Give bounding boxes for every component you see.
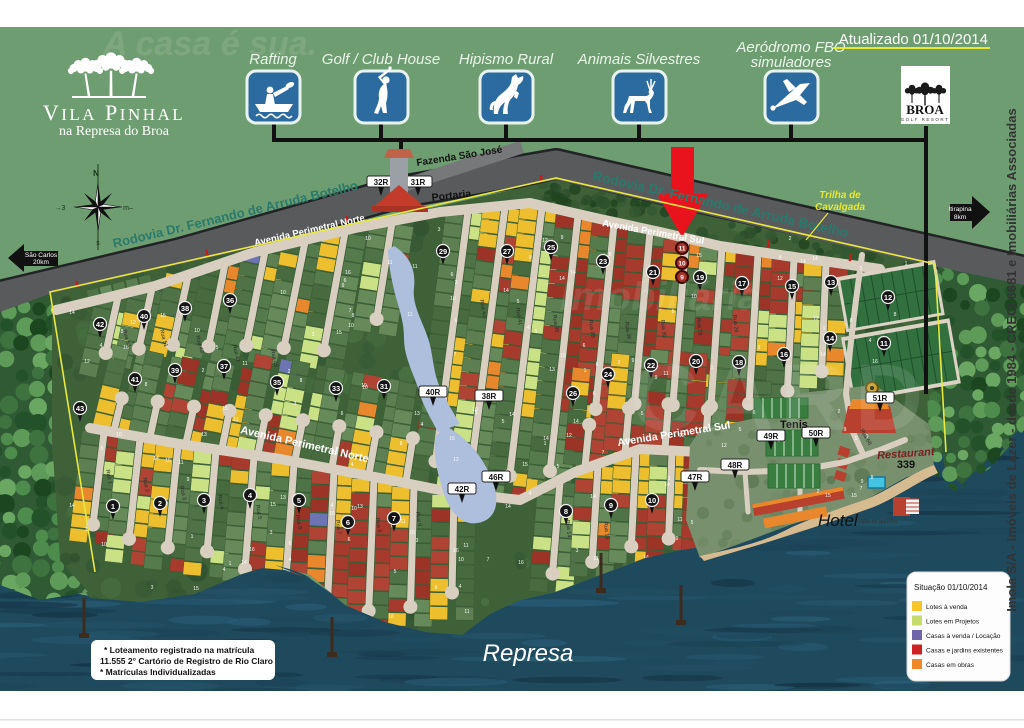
svg-text:11: 11: [593, 556, 598, 562]
svg-text:37: 37: [220, 362, 228, 371]
svg-text:4: 4: [459, 584, 462, 590]
svg-text:3: 3: [151, 585, 154, 591]
svg-text:10: 10: [450, 296, 456, 302]
svg-text:47R: 47R: [688, 473, 703, 482]
svg-text:1: 1: [191, 534, 194, 540]
svg-text:Itirapina: Itirapina: [948, 206, 972, 213]
svg-text:CARD: CARD: [631, 345, 929, 451]
svg-text:3: 3: [668, 476, 671, 482]
svg-text:6: 6: [455, 318, 458, 324]
svg-text:5: 5: [216, 345, 219, 351]
svg-text:7: 7: [392, 514, 396, 523]
svg-text:12: 12: [813, 316, 819, 322]
svg-text:12: 12: [130, 320, 136, 326]
svg-text:10: 10: [648, 496, 656, 505]
svg-text:4: 4: [421, 422, 424, 428]
svg-text:42R: 42R: [455, 485, 470, 494]
svg-text:3: 3: [202, 496, 206, 505]
svg-text:13: 13: [414, 411, 420, 417]
svg-text:→3: →3: [55, 205, 66, 212]
svg-text:8: 8: [609, 252, 612, 258]
svg-text:na Represa do Broa: na Represa do Broa: [59, 124, 170, 139]
svg-text:15: 15: [270, 502, 276, 508]
svg-text:5: 5: [691, 520, 694, 526]
svg-text:26: 26: [569, 389, 577, 398]
svg-text:11: 11: [400, 519, 405, 525]
svg-text:11: 11: [242, 361, 247, 367]
svg-text:15: 15: [788, 282, 796, 291]
svg-text:8km: 8km: [954, 214, 966, 221]
svg-text:16: 16: [388, 614, 394, 620]
svg-text:11: 11: [464, 609, 469, 615]
svg-text:15: 15: [851, 493, 857, 499]
svg-text:3: 3: [294, 401, 297, 407]
svg-text:16: 16: [453, 548, 459, 554]
svg-text:11: 11: [407, 312, 412, 318]
svg-text:14: 14: [69, 310, 75, 316]
svg-text:9: 9: [187, 477, 190, 483]
svg-text:Valle do gaúcho: Valle do gaúcho: [858, 519, 897, 525]
svg-text:10: 10: [409, 530, 415, 536]
svg-text:5: 5: [297, 496, 301, 505]
svg-text:10: 10: [194, 328, 200, 334]
svg-text:8: 8: [564, 507, 568, 516]
svg-text:N: N: [93, 169, 99, 178]
svg-text:11: 11: [233, 417, 238, 423]
svg-text:6: 6: [348, 537, 351, 543]
svg-text:6: 6: [451, 272, 454, 278]
svg-text:5: 5: [517, 299, 520, 305]
svg-text:3: 3: [438, 227, 441, 233]
svg-text:BROA: BROA: [906, 102, 944, 117]
svg-text:46R: 46R: [489, 473, 504, 482]
svg-text:6: 6: [346, 518, 350, 527]
svg-text:Lotes em Projetos: Lotes em Projetos: [926, 619, 980, 626]
svg-text:35: 35: [273, 378, 281, 387]
svg-text:15: 15: [522, 462, 528, 468]
svg-text:10: 10: [365, 236, 371, 242]
svg-text:29: 29: [439, 247, 447, 256]
svg-text:15: 15: [336, 330, 342, 336]
svg-text:Situação 01/10/2014: Situação 01/10/2014: [914, 583, 988, 592]
svg-text:32R: 32R: [374, 178, 389, 187]
svg-text:12: 12: [777, 276, 783, 282]
svg-text:6: 6: [583, 343, 586, 349]
svg-text:10: 10: [351, 506, 357, 512]
svg-text:6: 6: [341, 411, 344, 417]
svg-text:14: 14: [573, 419, 579, 425]
svg-text:23: 23: [599, 257, 607, 266]
svg-text:36: 36: [226, 296, 234, 305]
svg-text:7: 7: [454, 352, 457, 358]
svg-text:14: 14: [153, 456, 159, 462]
svg-text:16: 16: [518, 560, 524, 566]
svg-text:São Carlos: São Carlos: [25, 252, 58, 259]
svg-text:41: 41: [131, 375, 139, 384]
svg-text:1: 1: [544, 441, 547, 447]
svg-text:4: 4: [527, 325, 530, 331]
svg-text:Imobiliária: Imobiliária: [560, 275, 760, 319]
svg-text:14: 14: [241, 560, 247, 566]
svg-text:16: 16: [345, 270, 351, 276]
svg-text:Cavalgada: Cavalgada: [815, 202, 865, 213]
svg-text:11: 11: [677, 517, 682, 523]
svg-text:14: 14: [826, 334, 835, 343]
svg-text:9: 9: [609, 501, 613, 510]
svg-text:8: 8: [400, 441, 403, 447]
svg-text:5: 5: [860, 266, 863, 272]
svg-text:40R: 40R: [426, 388, 441, 397]
svg-text:8: 8: [850, 318, 853, 324]
svg-text:14: 14: [664, 482, 670, 488]
svg-text:2: 2: [288, 369, 291, 375]
svg-text:15: 15: [222, 406, 228, 412]
svg-text:14: 14: [69, 503, 75, 509]
svg-text:2: 2: [158, 499, 162, 508]
svg-text:Atualizado 01/10/2014: Atualizado 01/10/2014: [839, 31, 988, 48]
svg-text:2: 2: [789, 236, 792, 242]
svg-text:4: 4: [289, 557, 292, 563]
svg-text:15: 15: [193, 586, 199, 592]
svg-text:14: 14: [800, 259, 806, 265]
svg-text:1: 1: [823, 326, 826, 332]
svg-text:4: 4: [223, 567, 226, 573]
svg-text:43: 43: [76, 404, 84, 413]
svg-text:13: 13: [201, 432, 207, 438]
svg-text:339: 339: [897, 459, 915, 471]
svg-text:1: 1: [229, 561, 232, 567]
svg-text:38R: 38R: [482, 392, 497, 401]
svg-text:3: 3: [312, 332, 315, 338]
svg-text:24: 24: [604, 370, 613, 379]
svg-text:Hipismo Rural: Hipismo Rural: [459, 51, 554, 68]
svg-text:33: 33: [332, 384, 340, 393]
svg-text:Lotes à venda: Lotes à venda: [926, 604, 968, 611]
svg-text:14: 14: [503, 288, 509, 294]
svg-text:11: 11: [412, 264, 417, 270]
svg-text:4: 4: [351, 462, 354, 468]
svg-text:Casas e jardins existentes: Casas e jardins existentes: [926, 648, 1004, 655]
svg-text:16: 16: [249, 547, 255, 553]
svg-text:GOLF RESORT: GOLF RESORT: [901, 117, 950, 122]
svg-text:12: 12: [566, 433, 572, 439]
svg-text:14: 14: [812, 256, 818, 262]
svg-text:13: 13: [357, 504, 363, 510]
svg-text:15: 15: [160, 313, 166, 319]
svg-text:31: 31: [380, 382, 388, 391]
svg-text:11.555 2° Cartório de Registro: 11.555 2° Cartório de Registro de Rio Cl…: [100, 656, 273, 666]
svg-text:Hotel: Hotel: [818, 511, 859, 530]
svg-text:1: 1: [905, 261, 908, 267]
svg-text:8: 8: [300, 378, 303, 384]
svg-text:simuladores: simuladores: [751, 54, 832, 71]
svg-text:6: 6: [289, 541, 292, 547]
svg-text:Casas à venda / Locação: Casas à venda / Locação: [926, 633, 1001, 640]
svg-text:5: 5: [394, 569, 397, 575]
svg-text:27: 27: [503, 247, 511, 256]
svg-text:15: 15: [165, 458, 171, 464]
svg-text:10: 10: [678, 260, 686, 267]
svg-text:2: 2: [817, 489, 820, 495]
svg-text:40: 40: [140, 312, 148, 321]
svg-text:9: 9: [529, 255, 532, 261]
svg-text:3: 3: [455, 280, 458, 286]
svg-text:8: 8: [894, 312, 897, 318]
svg-text:14: 14: [505, 504, 511, 510]
svg-text:9: 9: [861, 479, 864, 485]
svg-text:8: 8: [145, 382, 148, 388]
svg-text:6: 6: [596, 362, 599, 368]
svg-text:5: 5: [475, 410, 478, 416]
svg-text:10: 10: [458, 557, 464, 563]
svg-text:* Matrículas Individualizadas: * Matrículas Individualizadas: [100, 667, 216, 677]
svg-text:13: 13: [827, 278, 835, 287]
svg-text:1: 1: [535, 329, 538, 335]
svg-text:4: 4: [779, 255, 782, 261]
svg-text:7: 7: [349, 308, 352, 314]
svg-text:14: 14: [509, 412, 515, 418]
svg-text:4: 4: [529, 491, 532, 497]
svg-text:3: 3: [416, 538, 419, 544]
svg-text:9: 9: [676, 536, 679, 542]
svg-text:Animais Silvestres: Animais Silvestres: [577, 51, 701, 68]
svg-text:38: 38: [181, 304, 189, 313]
svg-text:15: 15: [696, 253, 702, 259]
svg-text:11: 11: [387, 260, 392, 266]
svg-text:Represa: Represa: [483, 640, 574, 667]
svg-text:20km: 20km: [33, 259, 49, 266]
svg-text:3: 3: [270, 530, 273, 536]
svg-text:4: 4: [100, 343, 103, 349]
svg-text:31R: 31R: [411, 178, 426, 187]
svg-text:39: 39: [171, 366, 179, 375]
svg-text:48R: 48R: [728, 461, 743, 470]
svg-text:3: 3: [576, 548, 579, 554]
svg-text:A casa é sua.: A casa é sua.: [102, 25, 317, 63]
svg-text:15: 15: [825, 493, 831, 499]
svg-text:10: 10: [116, 432, 122, 438]
svg-text:8: 8: [871, 475, 874, 481]
svg-text:s: s: [96, 240, 100, 247]
svg-text:5: 5: [557, 464, 560, 470]
svg-text:11: 11: [463, 543, 468, 549]
svg-text:7: 7: [487, 557, 490, 563]
svg-text:Trilha de: Trilha de: [819, 190, 861, 201]
svg-text:11: 11: [679, 245, 686, 252]
svg-text:5: 5: [502, 419, 505, 425]
svg-text:12: 12: [453, 457, 459, 463]
svg-text:2: 2: [618, 360, 621, 366]
svg-text:7: 7: [602, 450, 605, 456]
svg-text:13: 13: [280, 495, 286, 501]
svg-text:8: 8: [352, 313, 355, 319]
svg-text:13: 13: [549, 367, 555, 373]
svg-text:14: 14: [590, 494, 596, 500]
svg-text:6: 6: [593, 391, 596, 397]
svg-text:12: 12: [884, 293, 892, 302]
svg-text:Casas em obras: Casas em obras: [926, 662, 975, 669]
svg-text:12: 12: [84, 359, 90, 365]
svg-text:9: 9: [435, 585, 438, 591]
svg-text:Golf / Club House: Golf / Club House: [322, 51, 440, 68]
svg-text:7: 7: [860, 486, 863, 492]
svg-text:1: 1: [111, 502, 115, 511]
svg-text:10: 10: [101, 542, 107, 548]
svg-text:11: 11: [178, 460, 183, 466]
svg-text:Imola S/A - Imóveis de Lazer -: Imola S/A - Imóveis de Lazer - desde 198…: [1004, 108, 1019, 611]
svg-text:2: 2: [202, 368, 205, 374]
svg-text:5: 5: [101, 446, 104, 452]
svg-text:4: 4: [869, 338, 872, 344]
svg-text:42: 42: [96, 320, 104, 329]
svg-text:25: 25: [547, 243, 555, 252]
svg-text:m–: m–: [123, 205, 133, 212]
svg-text:9: 9: [561, 235, 564, 241]
svg-text:15: 15: [560, 353, 566, 359]
svg-text:* Loteamento registrado na mat: * Loteamento registrado na matrícula: [104, 645, 254, 655]
svg-text:1: 1: [584, 368, 587, 374]
svg-text:10: 10: [362, 385, 368, 391]
svg-text:15: 15: [449, 436, 455, 442]
svg-text:10: 10: [348, 323, 354, 329]
svg-text:16: 16: [329, 511, 335, 517]
svg-text:10: 10: [280, 290, 286, 296]
svg-text:9: 9: [342, 283, 345, 289]
svg-text:4: 4: [331, 503, 334, 509]
